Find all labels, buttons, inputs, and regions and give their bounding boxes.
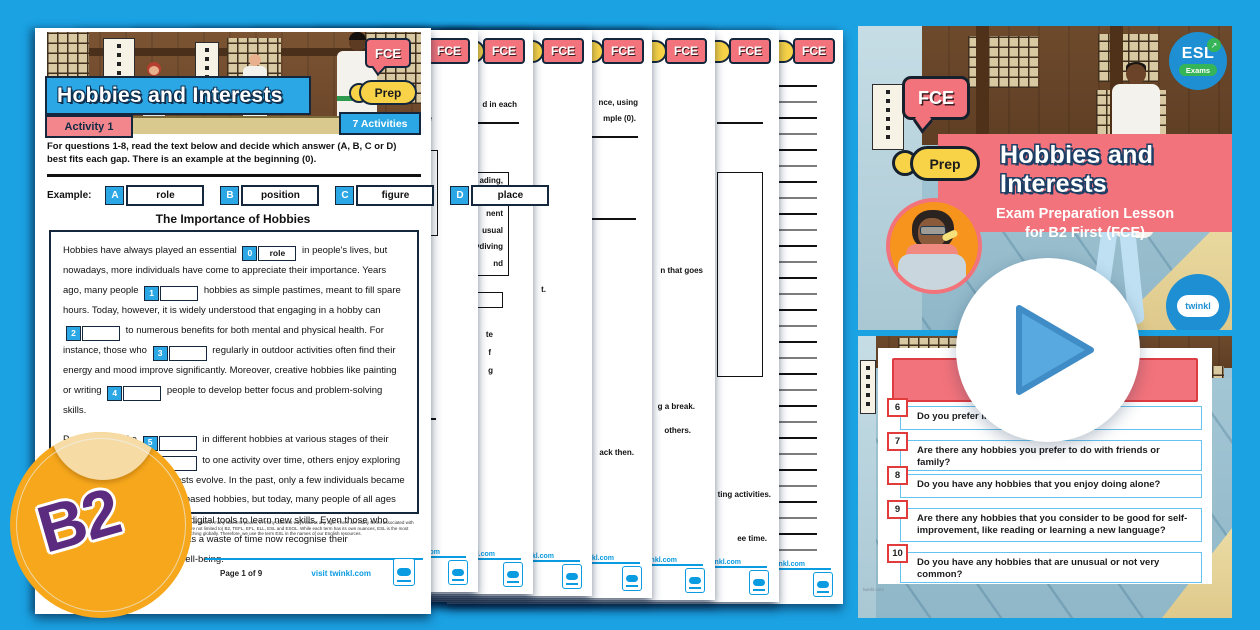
divider [47,174,421,177]
esl-exams-logo: ↗ ESL Exams [1169,32,1227,90]
instructions-text: For questions 1-8, read the text below a… [47,140,415,166]
gap-0: 0role [242,246,296,261]
writing-line [779,117,817,119]
fce-badge: FCE [542,38,584,64]
writing-line [779,213,817,215]
green-dot-icon: ↗ [1207,38,1221,52]
question-number: 6 [887,398,908,417]
twinkl-logo-text: twinkl [1177,295,1219,317]
passage-title: The Importance of Hobbies [35,212,431,226]
twinkl-logo-icon [749,570,769,595]
text-fragment: n that goes [660,266,703,275]
slide-title: Hobbies and Interests [1000,141,1232,199]
activity-badge: Activity 1 [45,115,133,138]
prep-badge: Prep [359,80,417,105]
visit-link[interactable]: visit twinkl.com [311,569,371,578]
question-text: Are there any hobbies you prefer to do w… [917,445,1160,468]
gap-answer-box [159,436,197,451]
question-number: 7 [887,432,908,451]
option-letter-tile: B [220,186,239,205]
question-number: 10 [887,544,908,563]
twinkl-logo-icon [448,560,468,585]
level-badge-text: B2 [29,472,127,567]
writing-line [779,549,817,551]
activities-count-badge: 7 Activities [339,112,421,135]
fce-badge: FCE [602,38,644,64]
text-fragment: ack then. [599,448,634,457]
text-fragment: f [488,348,491,357]
level-badge: B2 [10,432,192,618]
writing-line [779,261,817,263]
gap-number-tile: 3 [153,346,168,361]
writing-line [779,85,817,87]
text-fragment: ee time. [737,534,767,543]
writing-line [779,485,817,487]
text-fragment: g [488,366,493,375]
passage-paragraph-1: Hobbies have always played an essential … [63,241,405,420]
option-letter-tile: A [105,186,124,205]
gap-number-tile: 1 [144,286,159,301]
gap-1: 1 [144,286,198,301]
writing-line [779,453,817,455]
writing-line [779,405,817,407]
fce-badge: FCE [365,38,411,68]
fce-speech-bubble: FCE [902,76,970,120]
writing-line [779,229,817,231]
writing-line [779,181,817,183]
worksheet-title: Hobbies and Interests [57,84,283,108]
fce-badge: FCE [665,38,707,64]
twinkl-logo-icon [685,568,705,593]
play-icon [1013,302,1097,398]
gap-answer-box [169,346,207,361]
writing-line [779,501,817,503]
writing-line [779,293,817,295]
text-fragment: mple (0). [603,114,636,123]
twinkl-logo-icon [503,562,523,587]
play-button[interactable] [956,258,1140,442]
esl-logo-subtext: Exams [1179,64,1217,76]
example-option: Dplace [450,185,549,206]
sticker-peel [50,432,156,480]
writing-line [779,165,817,167]
question-row: 9Are there any hobbies that you consider… [900,508,1202,542]
twinkl-logo-icon [622,566,642,591]
question-text: Do you have any hobbies that are unusual… [917,557,1159,580]
example-option: Cfigure [335,185,434,206]
gap-answer-box [123,386,161,401]
gap-3: 3 [153,346,207,361]
slide-subtitle-line1: Exam Preparation Lesson [938,205,1232,224]
option-letter-tile: C [335,186,354,205]
worksheet-title-banner: Hobbies and Interests [45,76,311,115]
writing-line [779,373,817,375]
fce-badge: FCE [483,38,525,64]
text-fragment: ting activities. [718,490,771,499]
gap-answer-box [82,326,120,341]
writing-line [779,341,817,343]
pillar [976,26,989,148]
option-word-box: position [241,185,319,206]
writing-line [779,469,817,471]
writing-line [779,533,817,535]
page-number: Page 1 of 9 [220,569,262,578]
gap-number-tile: 4 [107,386,122,401]
footer-divider [205,558,423,560]
twinkl-logo-icon [813,572,833,597]
calligraphy-scroll [860,360,876,414]
speaker-avatar [886,198,982,294]
example-option: Arole [105,185,204,206]
gap-number-tile: 2 [66,326,81,341]
twinkl-logo-icon [393,558,415,586]
writing-line [779,245,817,247]
writing-line [779,309,817,311]
example-option: Bposition [220,185,319,206]
writing-line [779,133,817,135]
question-row: 8Do you have any hobbies that you enjoy … [900,474,1202,498]
gap-answer-box [160,286,198,301]
gap-2: 2 [66,326,120,341]
rule-line [717,122,763,124]
option-word-box: role [126,185,204,206]
writing-line [779,149,817,151]
question-row: 10Do you have any hobbies that are unusu… [900,552,1202,583]
gap-4: 4 [107,386,161,401]
slide-title-banner: Hobbies and Interests Exam Preparation L… [938,134,1232,232]
question-text: Do you have any hobbies that you enjoy d… [917,479,1160,490]
text-fragment: others. [664,426,691,435]
writing-line [779,389,817,391]
option-letter-tile: D [450,186,469,205]
writing-line [779,325,817,327]
writing-line [779,357,817,359]
fce-badge: FCE [793,38,835,64]
example-label: Example: [47,190,91,201]
twinkl-logo-icon: twinkl [1166,274,1230,330]
writing-line [779,197,817,199]
writing-line [779,517,817,519]
question-number: 9 [887,500,908,519]
fce-badge: FCE [729,38,771,64]
gap-answer-box: role [258,246,296,261]
option-word-box: place [471,185,549,206]
fce-badge: FCE [428,38,470,64]
prep-pill: Prep [910,146,980,181]
text-fragment: d in each [482,100,517,109]
example-row: Example: AroleBpositionCfigureDplace [47,184,421,206]
question-row: 7Are there any hobbies you prefer to do … [900,440,1202,471]
question-text: Are there any hobbies that you consider … [917,513,1187,536]
text-fragment: nce, using [598,98,638,107]
writing-line [779,421,817,423]
text-fragment: te [486,330,493,339]
resource-preview: PrepFCEevisit twinkl.comPrepFCEd in each… [0,0,1260,630]
slide-subtitle-line2: for B2 First (FCE) [938,224,1232,243]
text-fragment: t. [541,285,546,294]
text-fragment: g a break. [658,402,695,411]
answer-box [717,172,763,377]
writing-line [779,277,817,279]
twinkl-logo-icon [562,564,582,589]
writing-line [779,101,817,103]
example-options: AroleBpositionCfigureDplace [105,185,565,206]
option-word-box: figure [356,185,434,206]
gap-number-tile: 0 [242,246,257,261]
question-number: 8 [887,466,908,485]
calligraphy-scroll [872,84,904,150]
writing-line [779,437,817,439]
watermark: twinkl.com [863,587,884,592]
